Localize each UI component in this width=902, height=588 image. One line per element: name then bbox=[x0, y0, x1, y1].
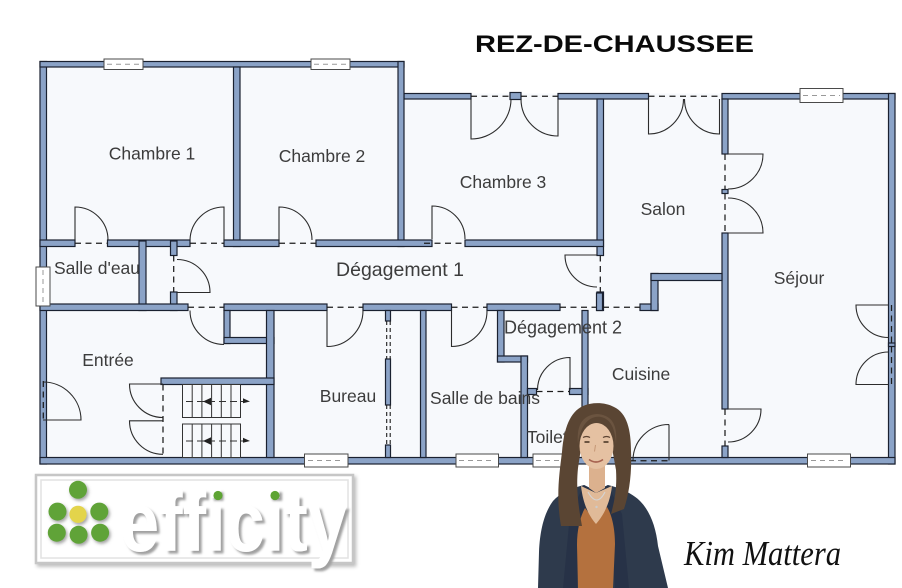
svg-text:Bureau: Bureau bbox=[320, 386, 376, 406]
svg-text:Salle de bains: Salle de bains bbox=[430, 388, 540, 408]
svg-text:Chambre 1: Chambre 1 bbox=[109, 144, 196, 164]
svg-text:REZ-DE-CHAUSSEE: REZ-DE-CHAUSSEE bbox=[475, 31, 754, 58]
svg-text:Chambre 3: Chambre 3 bbox=[460, 172, 547, 192]
svg-text:Séjour: Séjour bbox=[774, 268, 825, 288]
svg-text:Dégagement 1: Dégagement 1 bbox=[336, 259, 464, 281]
svg-text:efficity: efficity bbox=[120, 475, 347, 569]
svg-text:Kim Mattera: Kim Mattera bbox=[683, 534, 841, 573]
svg-text:Entrée: Entrée bbox=[82, 350, 134, 370]
svg-text:Salon: Salon bbox=[641, 199, 686, 219]
svg-text:Chambre 2: Chambre 2 bbox=[279, 146, 366, 166]
svg-text:Cuisine: Cuisine bbox=[612, 364, 670, 384]
svg-text:Salle d'eau: Salle d'eau bbox=[54, 258, 140, 278]
svg-text:Dégagement 2: Dégagement 2 bbox=[504, 318, 622, 338]
